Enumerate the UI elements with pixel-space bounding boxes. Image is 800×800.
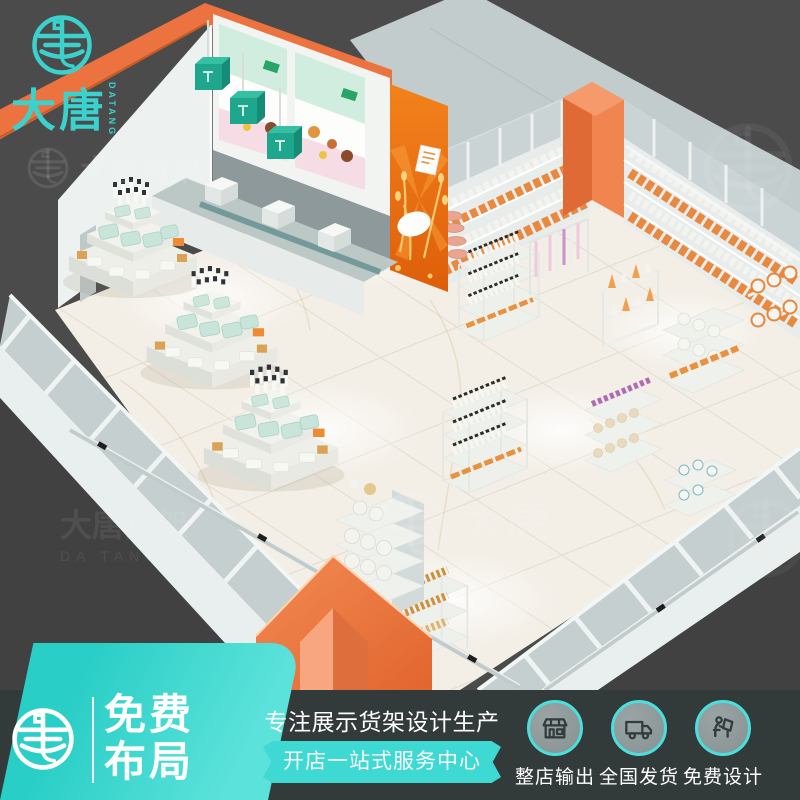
service-label: 全国发货: [599, 762, 679, 789]
divider: [92, 697, 94, 783]
store-3d-render: [0, 0, 800, 690]
truck-icon: [611, 700, 667, 756]
wheat-art-panel: [390, 84, 448, 292]
service-label: 整店输出: [515, 762, 595, 789]
service-item: 免费设计: [681, 700, 765, 789]
service-item: 整店输出: [513, 700, 597, 789]
offer-line2: 布局: [104, 738, 194, 785]
service-label: 免费设计: [683, 762, 763, 789]
designer-icon: [695, 700, 751, 756]
service-list: 整店输出 全国发货: [513, 700, 765, 789]
slogan-main: 专注展示货架设计生产: [262, 703, 502, 737]
footer-bar: 免费 布局 专注展示货架设计生产 开店一站式服务中心 整店输出: [0, 690, 800, 800]
storefront-icon: [527, 700, 583, 756]
offer-text: 免费 布局: [104, 691, 194, 785]
footer-emblem-icon: [10, 706, 76, 772]
product-banner: 大唐货架 大唐 DA TANG 大唐货架 DA TANG 大唐 DATANG 免…: [0, 0, 800, 800]
service-item: 全国发货: [597, 700, 681, 789]
offer-line1: 免费: [104, 691, 194, 738]
corner-pillar: [563, 82, 624, 218]
slogan-ribbon: 开店一站式服务中心: [263, 741, 501, 783]
